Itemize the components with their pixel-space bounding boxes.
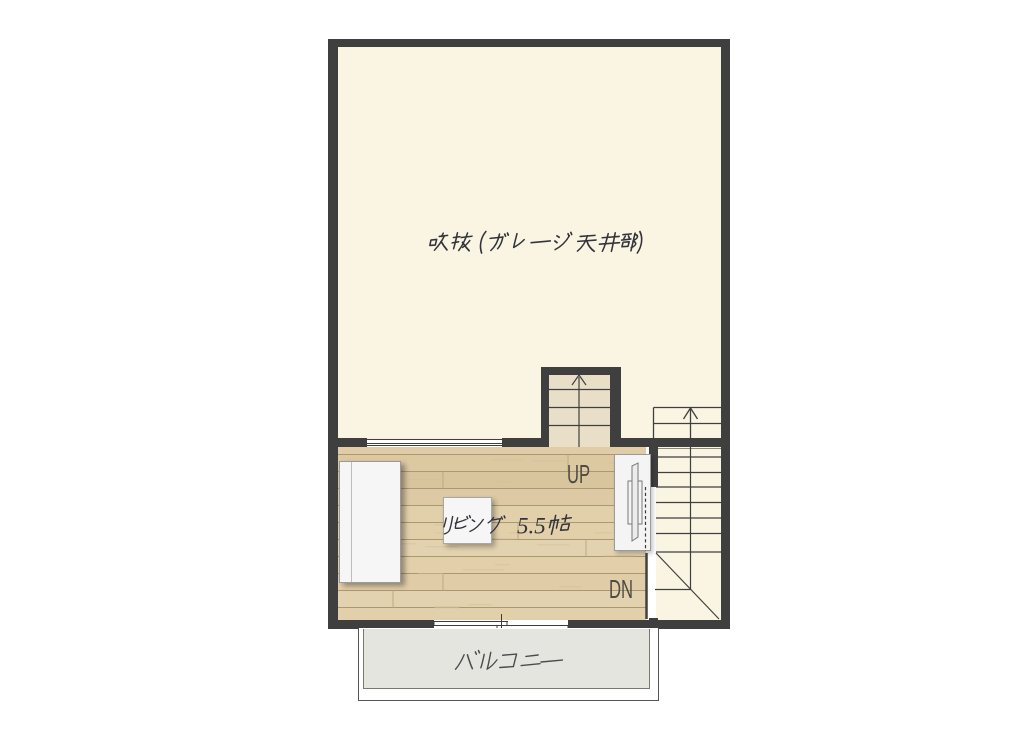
svg-text:5.5: 5.5 [517, 514, 546, 539]
